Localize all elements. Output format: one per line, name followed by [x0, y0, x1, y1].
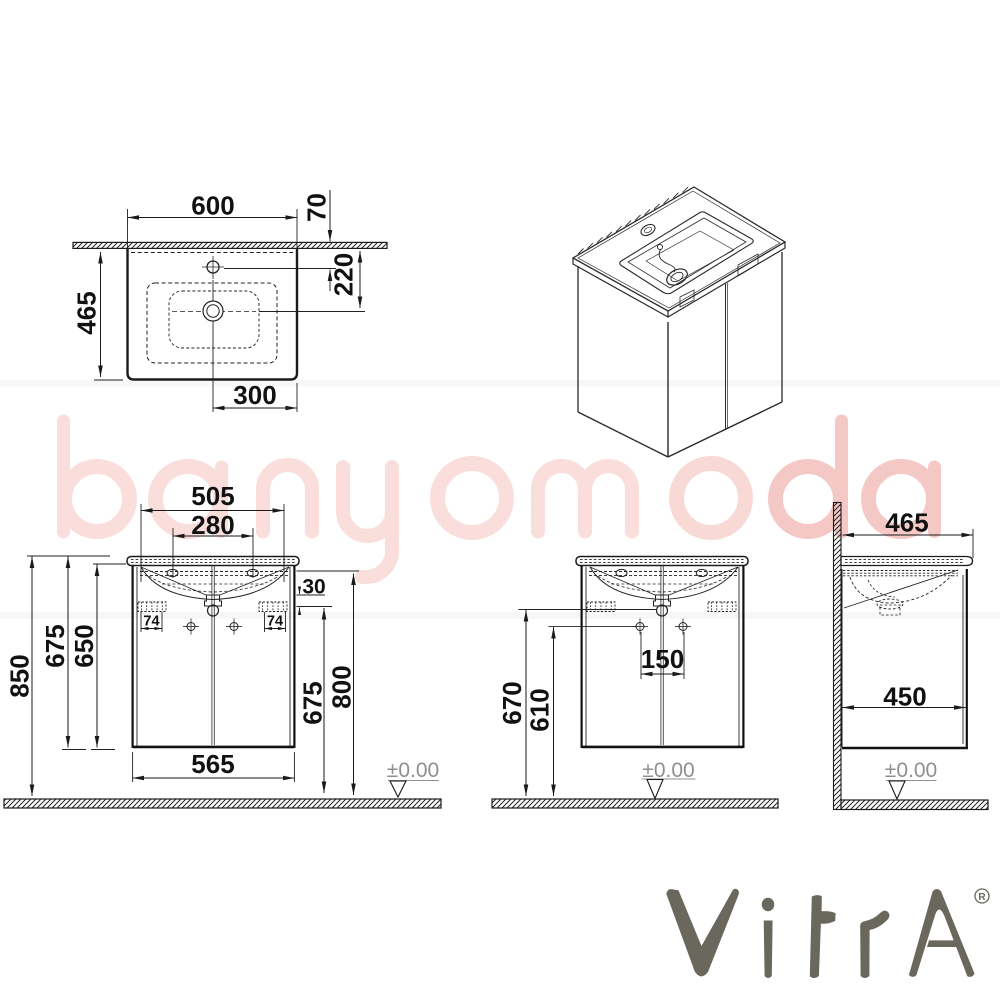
svg-text:300: 300 [233, 380, 276, 410]
svg-text:74: 74 [267, 614, 283, 630]
svg-text:670: 670 [497, 681, 527, 724]
svg-text:465: 465 [72, 291, 102, 334]
svg-text:565: 565 [191, 749, 234, 779]
svg-text:800: 800 [327, 665, 357, 708]
svg-text:465: 465 [885, 508, 928, 538]
svg-text:650: 650 [69, 624, 99, 667]
svg-text:610: 610 [525, 688, 555, 731]
svg-text:505: 505 [191, 481, 234, 511]
svg-text:280: 280 [191, 510, 234, 540]
svg-text:R: R [978, 892, 986, 903]
svg-text:850: 850 [5, 654, 35, 697]
svg-text:±0.00: ±0.00 [885, 759, 937, 782]
svg-text:220: 220 [329, 253, 359, 296]
svg-text:675: 675 [40, 624, 70, 667]
svg-text:675: 675 [298, 681, 328, 724]
svg-text:450: 450 [883, 682, 926, 712]
svg-text:600: 600 [191, 191, 234, 221]
svg-text:±0.00: ±0.00 [387, 759, 439, 782]
svg-text:150: 150 [641, 644, 684, 674]
svg-text:74: 74 [143, 614, 159, 630]
svg-text:70: 70 [302, 193, 332, 222]
